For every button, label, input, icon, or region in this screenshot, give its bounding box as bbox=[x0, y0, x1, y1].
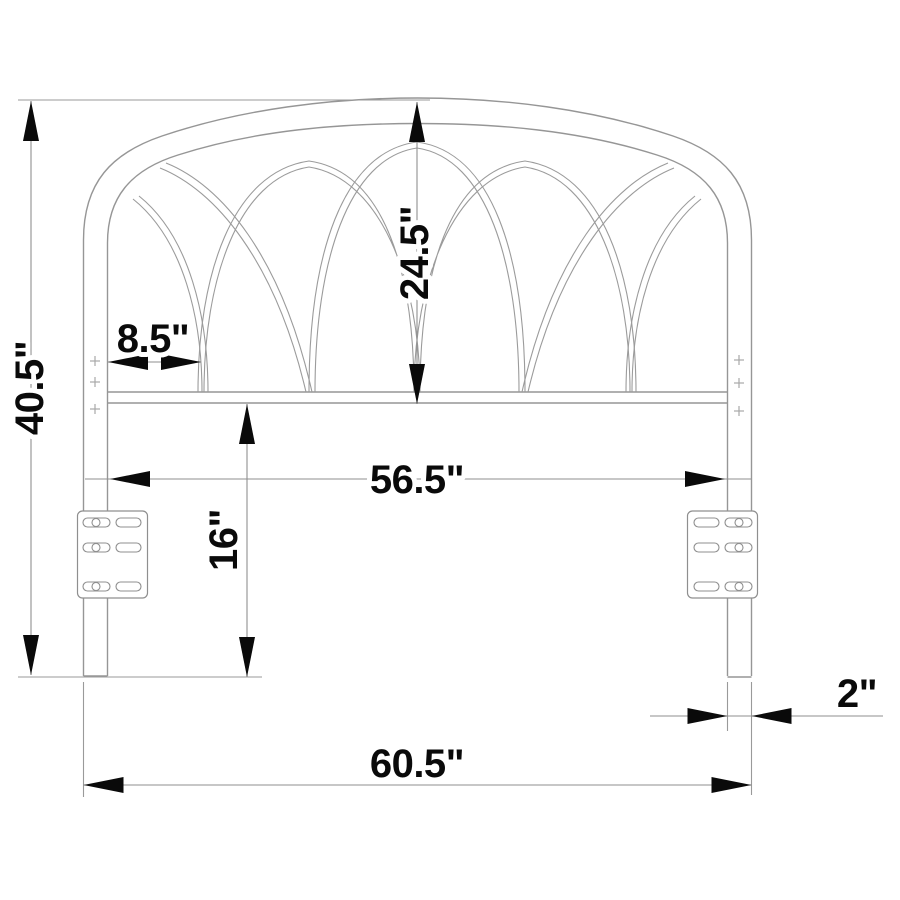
plus-mark bbox=[734, 378, 744, 388]
arrow-right bbox=[688, 708, 728, 724]
plus-mark bbox=[734, 406, 744, 416]
bracket-slot bbox=[725, 518, 752, 527]
arrow-up bbox=[239, 404, 255, 444]
arrow-right bbox=[712, 777, 752, 793]
headboard-drawing-svg: 40.5" 24.5" 8.5" 56.5" 16" 60.5" bbox=[0, 0, 900, 900]
left-bracket bbox=[78, 511, 148, 598]
arch-right-mid bbox=[414, 161, 636, 392]
bracket-slot bbox=[83, 582, 110, 591]
bracket-slot bbox=[83, 518, 110, 527]
arch-left-mid bbox=[198, 161, 420, 392]
bracket-slot bbox=[694, 518, 719, 527]
arrow-down bbox=[23, 635, 39, 675]
bracket-slot bbox=[725, 582, 752, 591]
dim-label-leg-width: 2" bbox=[837, 672, 877, 716]
right-bracket bbox=[688, 511, 758, 598]
dim-label-side-arch: 8.5" bbox=[117, 317, 190, 361]
dim-label-overall-height: 40.5" bbox=[8, 341, 52, 435]
bracket-slot bbox=[694, 543, 719, 552]
dim-label-arch-height: 24.5" bbox=[393, 206, 437, 300]
dim-label-overall-width: 60.5" bbox=[370, 742, 464, 786]
arch-right-long bbox=[522, 163, 674, 392]
arrow-down bbox=[239, 637, 255, 677]
plus-mark bbox=[90, 404, 100, 414]
bracket-slot bbox=[116, 518, 141, 527]
arrow-left bbox=[84, 777, 124, 793]
arrow-right bbox=[685, 471, 725, 487]
arrow-left bbox=[752, 708, 792, 724]
plus-mark bbox=[734, 355, 744, 365]
arrow-down bbox=[409, 364, 425, 404]
bracket-slot bbox=[694, 582, 719, 591]
dim-side-arch: 8.5" bbox=[108, 317, 201, 370]
bracket-slot bbox=[725, 543, 752, 552]
arrow-up bbox=[23, 101, 39, 141]
dim-lower-height: 16" bbox=[202, 404, 255, 677]
dim-leg-width: 2" bbox=[650, 672, 883, 724]
bracket-slot bbox=[83, 543, 110, 552]
dim-overall-height: 40.5" bbox=[8, 101, 52, 675]
dim-overall-width: 60.5" bbox=[84, 742, 752, 793]
dim-label-inner-width: 56.5" bbox=[370, 458, 464, 502]
extension-lines bbox=[18, 100, 752, 797]
plus-mark bbox=[90, 356, 100, 366]
dimension-drawing: 40.5" 24.5" 8.5" 56.5" 16" 60.5" bbox=[0, 0, 900, 900]
dim-inner-width: 56.5" bbox=[85, 458, 751, 502]
arrow-left bbox=[110, 471, 150, 487]
bracket-slot bbox=[116, 582, 141, 591]
plus-mark bbox=[90, 377, 100, 387]
bracket-slot bbox=[116, 543, 141, 552]
arrow-up bbox=[409, 102, 425, 142]
dim-label-lower-height: 16" bbox=[202, 509, 246, 571]
arch-small-right bbox=[626, 196, 701, 392]
